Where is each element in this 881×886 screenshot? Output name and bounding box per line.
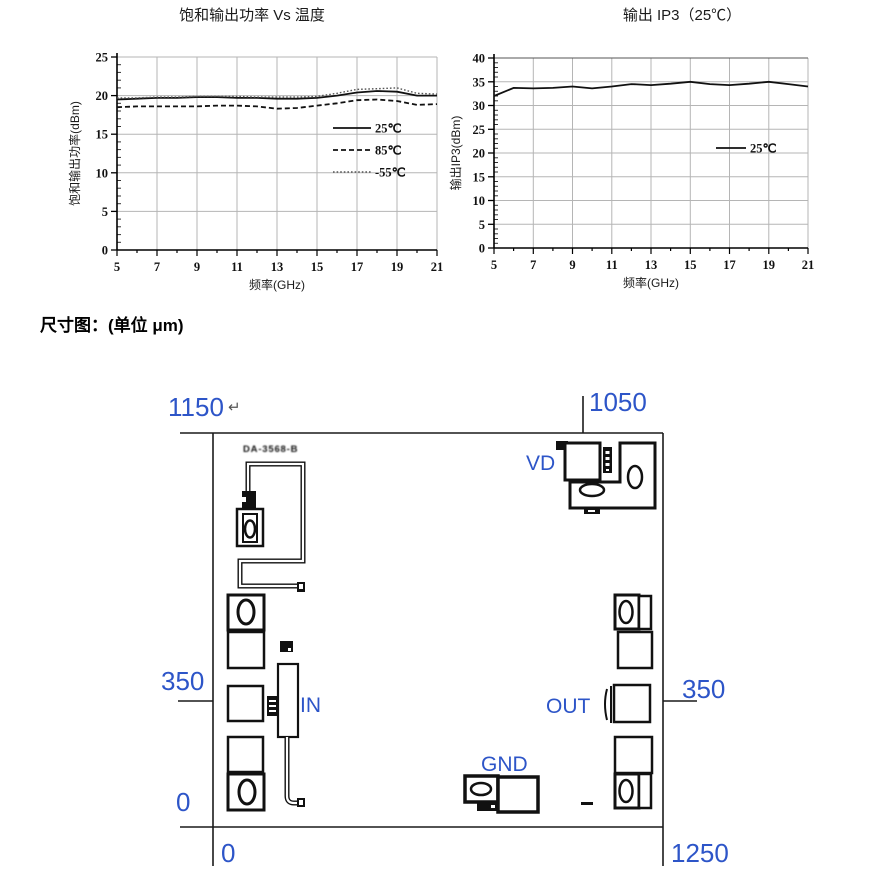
comb-slot	[269, 710, 276, 712]
x-tick-label: 7	[154, 260, 160, 274]
x-tick-label: 17	[351, 260, 364, 274]
legend-label: 25℃	[375, 122, 402, 136]
comb-slot	[606, 463, 610, 466]
y-tick-label: 5	[479, 218, 485, 232]
legend-label: 85℃	[375, 144, 402, 158]
x-tick-label: 11	[606, 258, 618, 272]
in-bond-pad	[228, 686, 263, 721]
y-tick-label: 40	[473, 52, 486, 66]
via-hole	[580, 484, 604, 496]
bar-slot	[491, 805, 495, 808]
x-tick-label: 19	[763, 258, 776, 272]
y-tick-label: 10	[473, 194, 486, 208]
out-probe-curve	[605, 689, 607, 720]
x-tick-label: 9	[569, 258, 575, 272]
vd-bond-pad	[565, 443, 600, 480]
bond-pad	[228, 632, 264, 668]
gnd-bond-pad	[498, 777, 538, 812]
dim-left-zero: 0	[176, 787, 190, 817]
dimension-diagram: 1150 ↵ 1050 350 350 0 0 1250 VD IN OUT G…	[0, 330, 881, 886]
dash-mark	[581, 802, 593, 805]
comb-slot	[606, 469, 609, 471]
port-label-in: IN	[300, 694, 321, 717]
y-tick-label: 25	[96, 51, 109, 65]
chart-title: 饱和输出功率 Vs 温度	[179, 7, 325, 24]
x-tick-label: 5	[114, 260, 120, 274]
output-pad-column	[605, 595, 652, 808]
dim-bottom-zero: 0	[221, 838, 235, 868]
dim-top-width: 1150	[168, 392, 224, 422]
in-stub-trace	[287, 737, 299, 803]
component-notch	[288, 648, 291, 651]
y-tick-label: 15	[96, 128, 109, 142]
via-hole	[471, 783, 491, 795]
x-tick-label: 21	[802, 258, 815, 272]
meander-trace	[237, 464, 305, 592]
dim-top-right-height: 1050	[589, 387, 647, 417]
bond-pad	[615, 737, 652, 773]
y-tick-label: 0	[102, 244, 108, 258]
x-tick-label: 5	[491, 258, 497, 272]
port-label-out: OUT	[546, 695, 591, 718]
y-tick-label: 25	[473, 123, 486, 137]
x-tick-label: 15	[684, 258, 697, 272]
chip-component	[280, 641, 293, 652]
x-tick-label: 19	[391, 260, 404, 274]
legend-label: -55℃	[375, 166, 406, 180]
comb-slot	[269, 705, 276, 707]
input-pad-column	[228, 595, 305, 810]
x-tick-label: 7	[530, 258, 536, 272]
x-tick-label: 9	[194, 260, 200, 274]
y-tick-label: 35	[473, 75, 486, 89]
datasheet-page: 051015202557911131517192125℃85℃-55℃饱和输出功…	[0, 0, 881, 886]
comb-slot	[606, 457, 610, 460]
x-axis-label: 频率(GHz)	[249, 277, 305, 292]
y-tick-label: 30	[473, 99, 486, 113]
via-hole	[238, 600, 254, 624]
via-hole	[620, 780, 633, 802]
y-tick-label: 0	[479, 242, 485, 256]
x-tick-label: 11	[231, 260, 243, 274]
dim-bottom-width: 1250	[671, 838, 729, 868]
vd-pad-group	[556, 441, 655, 514]
chart-ip3: 051015202530354057911131517192125℃输出 IP3…	[448, 7, 814, 290]
y-tick-label: 20	[96, 89, 109, 103]
y-tick-label: 10	[96, 166, 109, 180]
performance-charts: 051015202557911131517192125℃85℃-55℃饱和输出功…	[0, 0, 881, 312]
x-tick-label: 17	[723, 258, 736, 272]
part-marking: DA-3568-B	[243, 444, 298, 455]
comb-slot	[269, 700, 276, 702]
via-hole	[628, 466, 642, 488]
x-tick-label: 13	[271, 260, 284, 274]
legend-label: 25℃	[750, 142, 777, 156]
port-label-gnd: GND	[481, 753, 528, 776]
y-axis-label: 饱和输出功率(dBm)	[67, 101, 82, 206]
chart-psat: 051015202557911131517192125℃85℃-55℃饱和输出功…	[67, 7, 443, 292]
tab-slot	[588, 510, 595, 512]
port-label-vd: VD	[526, 452, 555, 475]
edge-strip	[639, 596, 651, 629]
trace-end-slot	[299, 584, 303, 589]
via-hole	[239, 780, 255, 804]
out-bond-pad	[614, 685, 650, 722]
y-tick-label: 5	[102, 205, 108, 219]
x-axis-label: 频率(GHz)	[623, 275, 679, 290]
edge-strip	[639, 774, 651, 808]
gnd-pad-group	[465, 776, 593, 812]
bond-pad	[618, 632, 652, 668]
dim-left-height: 350	[161, 666, 204, 696]
x-tick-label: 21	[431, 260, 444, 274]
paragraph-mark: ↵	[228, 399, 241, 416]
y-axis-label: 输出IP3(dBm)	[448, 116, 463, 191]
x-tick-label: 13	[645, 258, 658, 272]
y-tick-label: 15	[473, 170, 486, 184]
comb-slot	[606, 451, 610, 454]
chart-title: 输出 IP3（25℃）	[623, 7, 741, 24]
y-tick-label: 20	[473, 147, 486, 161]
component-notch	[242, 497, 246, 502]
via-hole	[620, 601, 633, 623]
via-hole	[245, 521, 255, 538]
x-tick-label: 15	[311, 260, 324, 274]
stub-end-slot	[299, 800, 303, 805]
dim-right-height: 350	[682, 674, 725, 704]
in-microstrip	[278, 664, 298, 737]
bond-pad	[228, 737, 263, 772]
